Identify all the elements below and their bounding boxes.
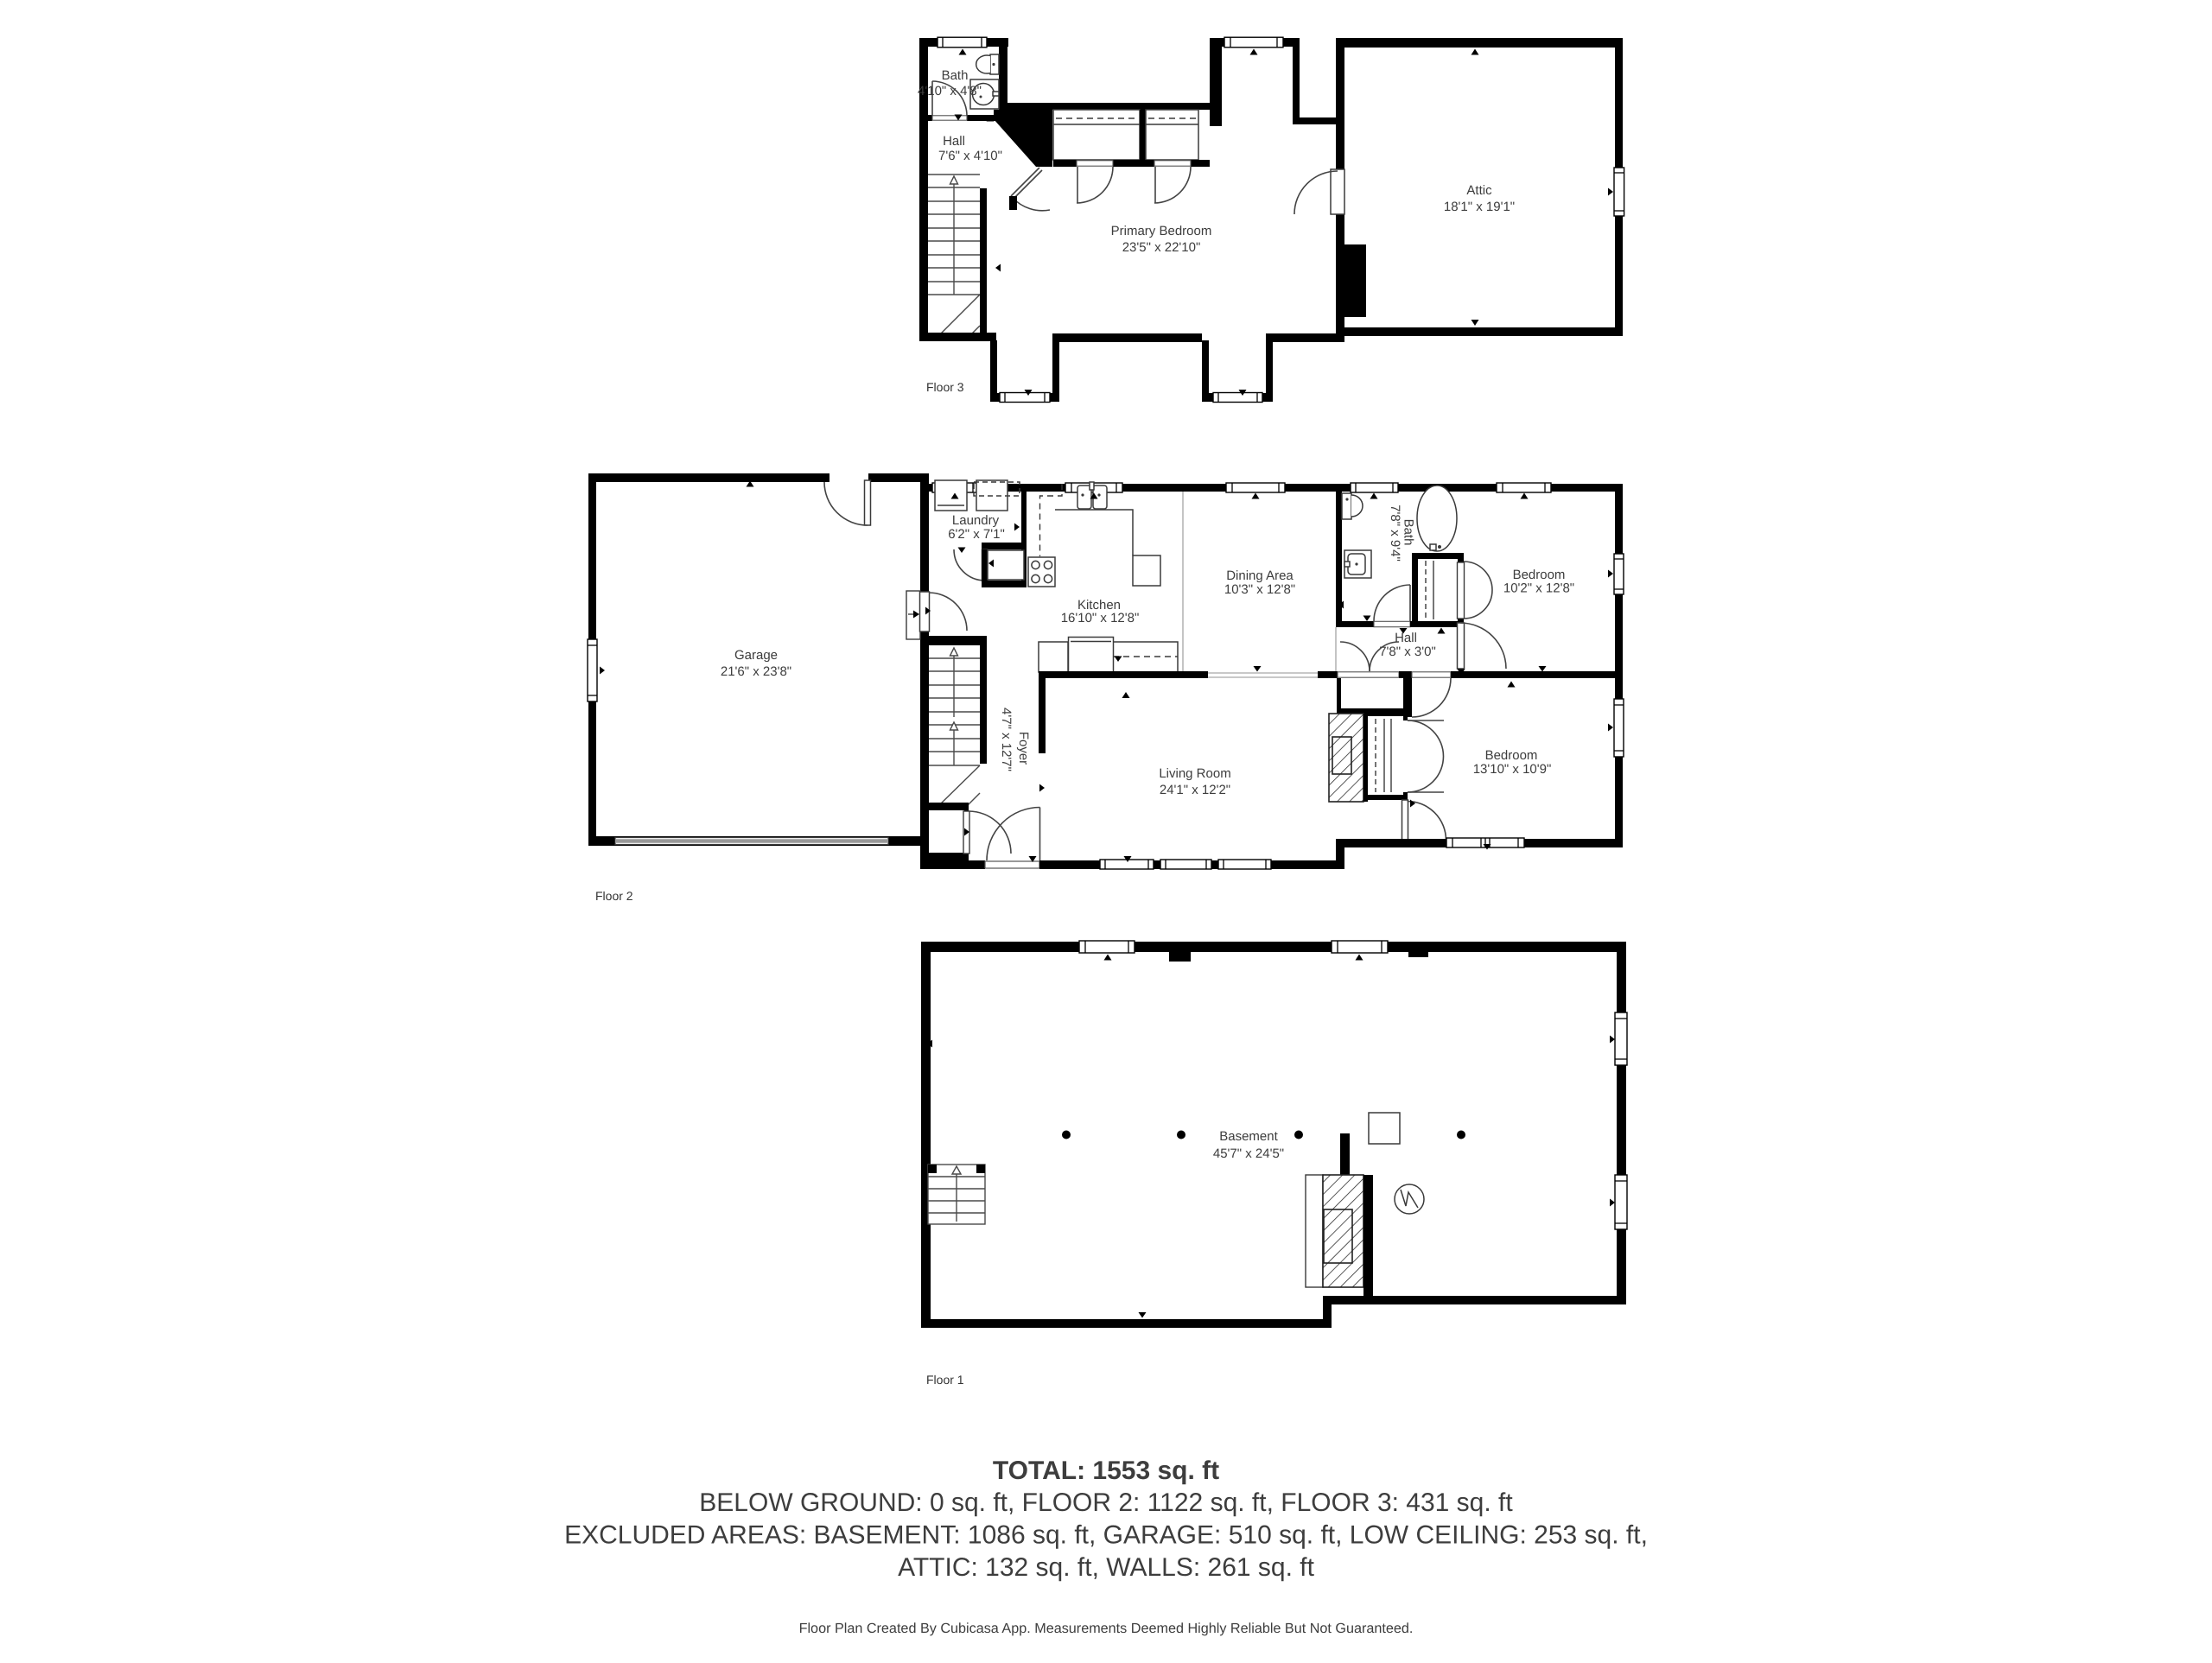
svg-text:Bedroom: Bedroom — [1513, 568, 1566, 582]
svg-text:Bedroom: Bedroom — [1485, 748, 1538, 763]
svg-text:EXCLUDED AREAS: BASEMENT: 1086: EXCLUDED AREAS: BASEMENT: 1086 sq. ft, G… — [564, 1521, 1648, 1550]
svg-text:10'3" x 12'8": 10'3" x 12'8" — [1224, 582, 1295, 597]
svg-text:Basement: Basement — [1219, 1129, 1278, 1144]
svg-text:10'2" x 12'8": 10'2" x 12'8" — [1503, 581, 1574, 596]
svg-text:ATTIC: 132 sq. ft, WALLS: 261: ATTIC: 132 sq. ft, WALLS: 261 sq. ft — [898, 1553, 1315, 1582]
svg-text:7'8" x 3'0": 7'8" x 3'0" — [1379, 644, 1436, 659]
svg-text:Attic: Attic — [1466, 183, 1492, 198]
svg-text:Hall: Hall — [943, 134, 965, 149]
svg-text:TOTAL: 1553 sq. ft: TOTAL: 1553 sq. ft — [993, 1457, 1219, 1485]
svg-text:Laundry: Laundry — [952, 513, 1000, 528]
svg-text:45'7" x 24'5": 45'7" x 24'5" — [1213, 1146, 1284, 1161]
svg-text:21'6" x 23'8": 21'6" x 23'8" — [721, 664, 791, 679]
svg-text:18'1" x 19'1": 18'1" x 19'1" — [1444, 200, 1515, 214]
svg-text:Foyer: Foyer — [1016, 732, 1031, 765]
svg-text:23'5" x 22'10": 23'5" x 22'10" — [1122, 240, 1201, 255]
svg-text:Bath: Bath — [942, 68, 969, 83]
svg-text:Floor 2: Floor 2 — [595, 889, 633, 903]
svg-text:Living Room: Living Room — [1159, 766, 1230, 781]
svg-text:7'8" x 9'4": 7'8" x 9'4" — [1388, 505, 1402, 562]
svg-text:6'2" x 7'1": 6'2" x 7'1" — [948, 527, 1005, 542]
svg-text:13'10" x 10'9": 13'10" x 10'9" — [1473, 762, 1552, 777]
svg-text:Floor 1: Floor 1 — [926, 1373, 964, 1387]
svg-text:7'6" x 4'10": 7'6" x 4'10" — [938, 149, 1002, 163]
svg-text:BELOW GROUND: 0 sq. ft, FLOOR: BELOW GROUND: 0 sq. ft, FLOOR 2: 1122 sq… — [699, 1488, 1513, 1517]
svg-text:Hall: Hall — [1395, 631, 1417, 645]
svg-text:4'7" x 12'7": 4'7" x 12'7" — [999, 708, 1014, 771]
svg-text:Floor 3: Floor 3 — [926, 380, 964, 394]
svg-text:Garage: Garage — [734, 648, 778, 663]
svg-text:Primary Bedroom: Primary Bedroom — [1111, 224, 1212, 238]
svg-text:4'10" x 4'8": 4'10" x 4'8" — [918, 84, 982, 98]
svg-text:Dining Area: Dining Area — [1226, 568, 1294, 583]
svg-text:24'1" x 12'2": 24'1" x 12'2" — [1160, 783, 1230, 797]
svg-text:Floor Plan Created By Cubicasa: Floor Plan Created By Cubicasa App. Meas… — [799, 1621, 1414, 1636]
svg-text:16'10" x 12'8": 16'10" x 12'8" — [1061, 611, 1140, 625]
svg-text:Bath: Bath — [1402, 519, 1416, 546]
